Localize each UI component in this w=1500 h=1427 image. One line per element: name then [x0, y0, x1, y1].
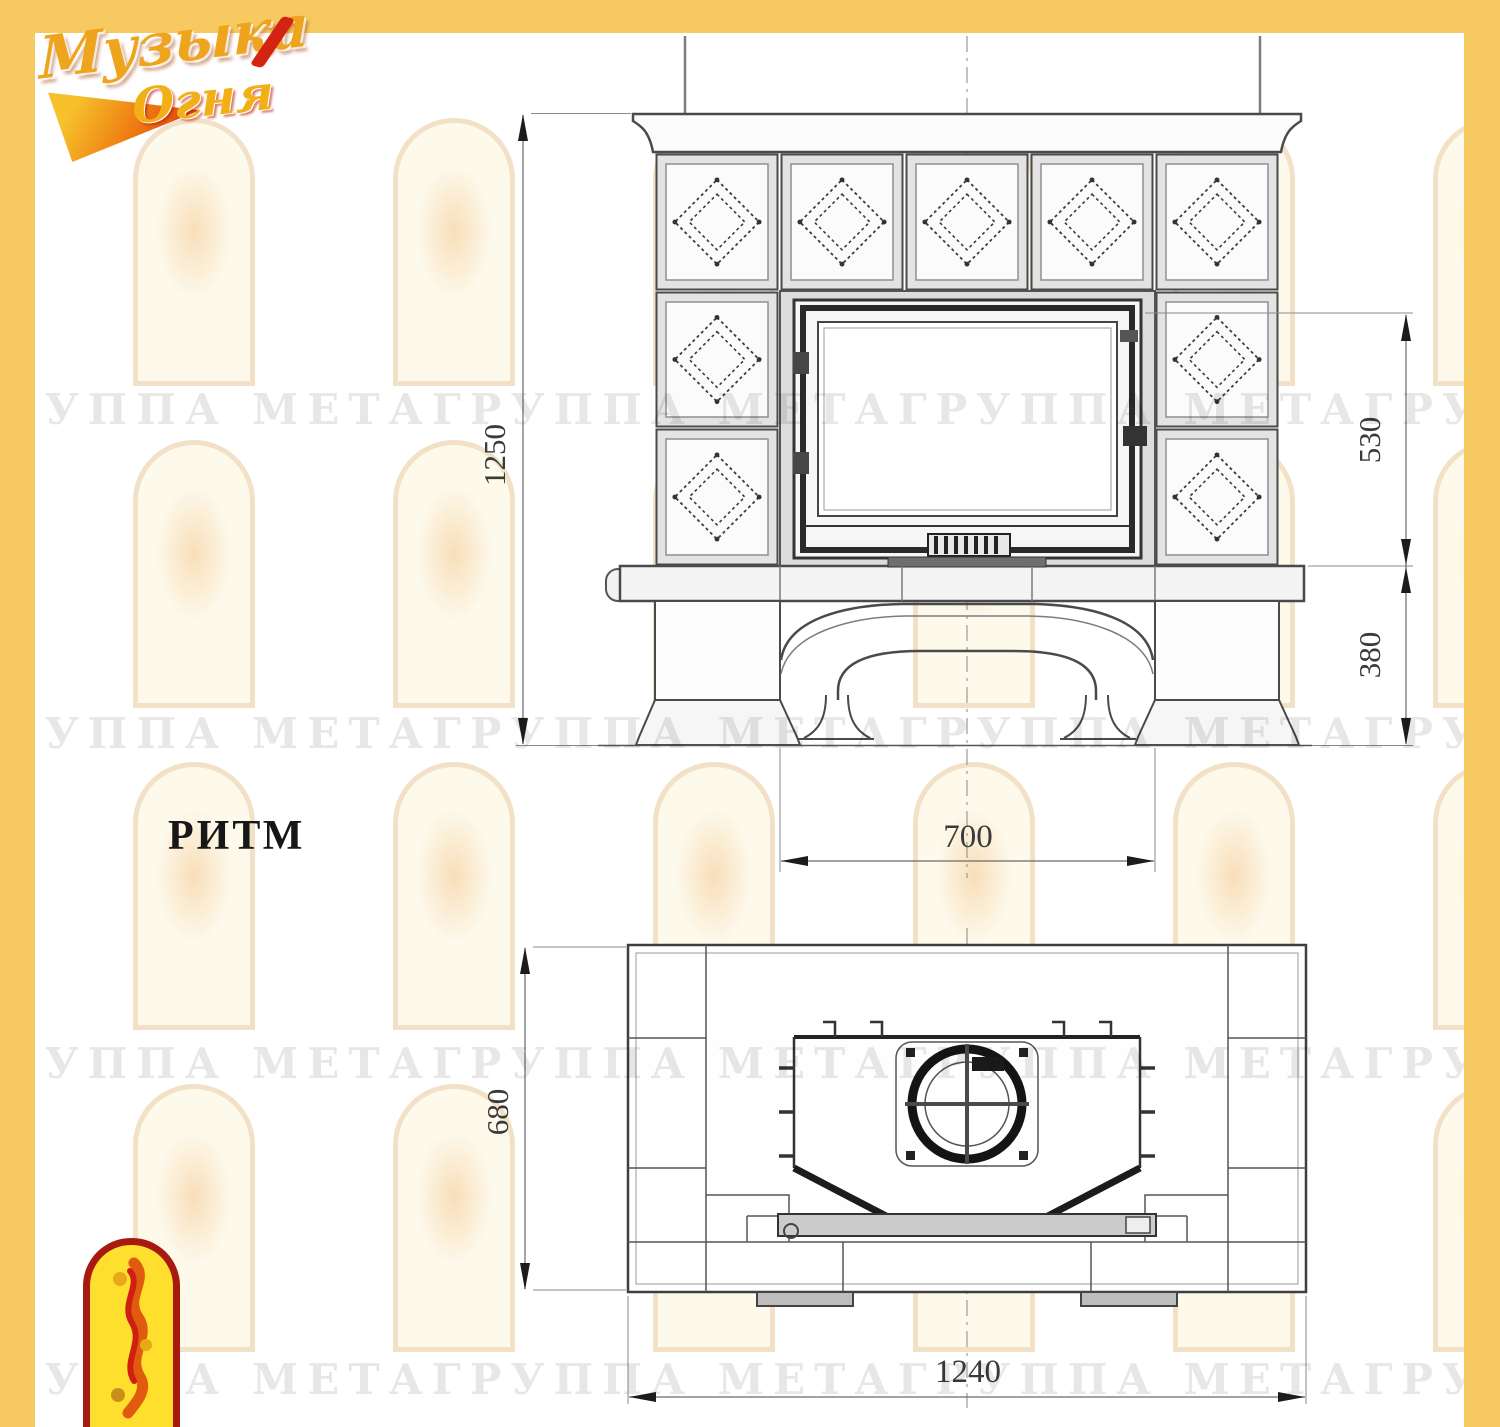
door-hinge-bottom [793, 452, 809, 474]
dimension-plan-depth: 680 [480, 947, 626, 1290]
dim-label-530: 530 [1352, 417, 1387, 464]
plan-damper-handle [972, 1057, 1004, 1071]
corner-emblem [83, 1238, 180, 1427]
door-glass [818, 322, 1117, 516]
right-yellow-band [1464, 0, 1500, 1427]
dimension-portal-width: 700 [780, 748, 1155, 872]
dim-label-1250: 1250 [477, 424, 512, 486]
plan-hearth-plate [778, 1214, 1156, 1236]
door-handle [1123, 426, 1147, 446]
plan-foot-left [757, 1292, 853, 1306]
dim-label-700: 700 [943, 819, 993, 855]
brand-logo: Музыка Огня [28, 2, 313, 170]
plan-view-drawing [628, 928, 1306, 1408]
dim-label-680: 680 [480, 1089, 515, 1136]
door-hinge-top [793, 352, 809, 374]
technical-drawing: 1250 530 380 700 [0, 0, 1500, 1427]
emblem-flame-figure-icon [90, 1245, 173, 1427]
plan-foot-right [1081, 1292, 1177, 1306]
door-latch [1120, 330, 1138, 342]
crown-molding [633, 114, 1301, 152]
dim-label-380: 380 [1352, 632, 1387, 679]
dimension-total-height: 1250 [477, 114, 631, 746]
dim-label-1240: 1240 [935, 1354, 1001, 1390]
page: { "brand": { "name_line1": "Музыка", "na… [0, 0, 1500, 1427]
model-name-label: РИТМ [168, 812, 305, 860]
left-yellow-band [0, 0, 35, 1427]
firebox-door [793, 300, 1147, 558]
front-view-drawing [598, 36, 1312, 878]
